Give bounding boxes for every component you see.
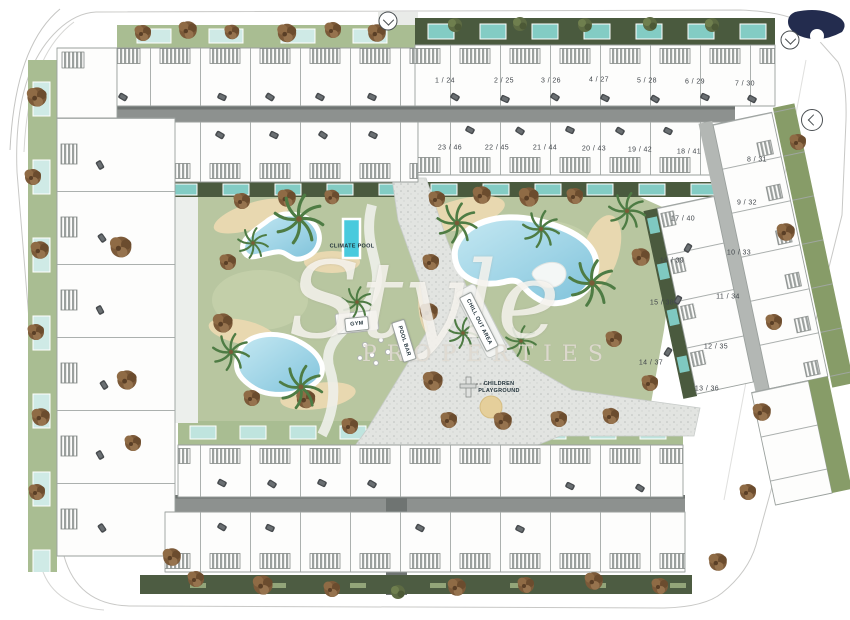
unit-label: 8 / 31 — [747, 157, 767, 164]
unit-label: 9 / 32 — [737, 200, 757, 207]
unit-label: 11 / 34 — [716, 294, 740, 301]
unit-label: 1 / 24 — [435, 78, 455, 85]
unit-label: 18 / 41 — [677, 149, 701, 156]
unit-label: 19 / 42 — [628, 147, 652, 154]
unit-label: 3 / 26 — [541, 78, 561, 85]
block-topleft-row2 — [135, 122, 418, 182]
unit-label: 20 / 43 — [582, 146, 606, 153]
unit-label: 4 / 27 — [589, 77, 609, 84]
site-plan-base — [0, 0, 850, 620]
unit-label: 6 / 29 — [685, 79, 705, 86]
chevron-down-icon — [382, 14, 393, 25]
unit-label: 12 / 35 — [704, 344, 728, 351]
unit-label: 7 / 30 — [735, 81, 755, 88]
chevron-down-icon — [784, 33, 795, 44]
unit-label: 10 / 33 — [727, 250, 751, 257]
unit-label: 21 / 44 — [533, 145, 557, 152]
unit-label: 16 / 39 — [660, 258, 684, 265]
gym-label: GYM — [344, 316, 370, 332]
bottom-hedge — [140, 575, 692, 594]
children-playground-label: CHILDREN PLAYGROUND — [478, 381, 520, 395]
block-bottom-row1 — [178, 445, 683, 497]
block-topright-row1 — [415, 45, 775, 106]
entrance-marker-right-side — [801, 109, 823, 131]
unit-label: 22 / 45 — [485, 145, 509, 152]
unit-label: 15 / 38 — [650, 300, 674, 307]
unit-label: 23 / 46 — [438, 145, 462, 152]
row1-hedge-pools — [415, 18, 775, 46]
site-plan: Style PROPERTIES 1 / 24 2 / 25 3 / 26 4 … — [0, 0, 850, 620]
unit-label: 5 / 28 — [637, 78, 657, 85]
unit-label: 2 / 25 — [494, 78, 514, 85]
entrance-marker-top — [379, 12, 398, 31]
unit-label: 17 / 40 — [671, 216, 695, 223]
climate-pool-label: CLIMATE POOL — [330, 244, 375, 251]
entrance-marker-right-top — [781, 31, 800, 50]
unit-label: 13 / 36 — [695, 386, 719, 393]
block-bottom-row2 — [165, 512, 685, 572]
unit-label: 14 / 37 — [639, 360, 663, 367]
block-left-column — [57, 118, 175, 556]
chevron-left-icon — [808, 114, 819, 125]
climate-pool — [343, 219, 360, 258]
